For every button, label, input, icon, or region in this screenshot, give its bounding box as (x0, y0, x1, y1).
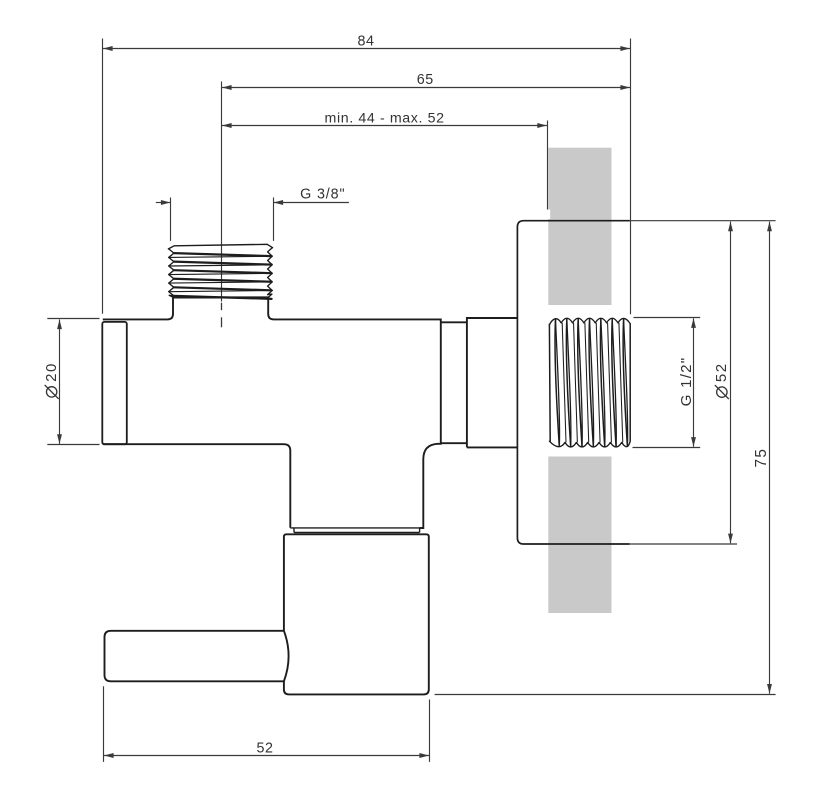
svg-text:52: 52 (713, 362, 730, 382)
svg-text:G 3/8": G 3/8" (300, 186, 345, 202)
svg-text:G 1/2": G 1/2" (678, 357, 695, 407)
svg-text:65: 65 (417, 72, 434, 88)
svg-text:min. 44 - max. 52: min. 44 - max. 52 (325, 110, 445, 126)
svg-text:52: 52 (256, 740, 273, 756)
svg-text:84: 84 (357, 34, 374, 50)
svg-text:75: 75 (753, 448, 770, 468)
svg-text:20: 20 (43, 362, 60, 382)
